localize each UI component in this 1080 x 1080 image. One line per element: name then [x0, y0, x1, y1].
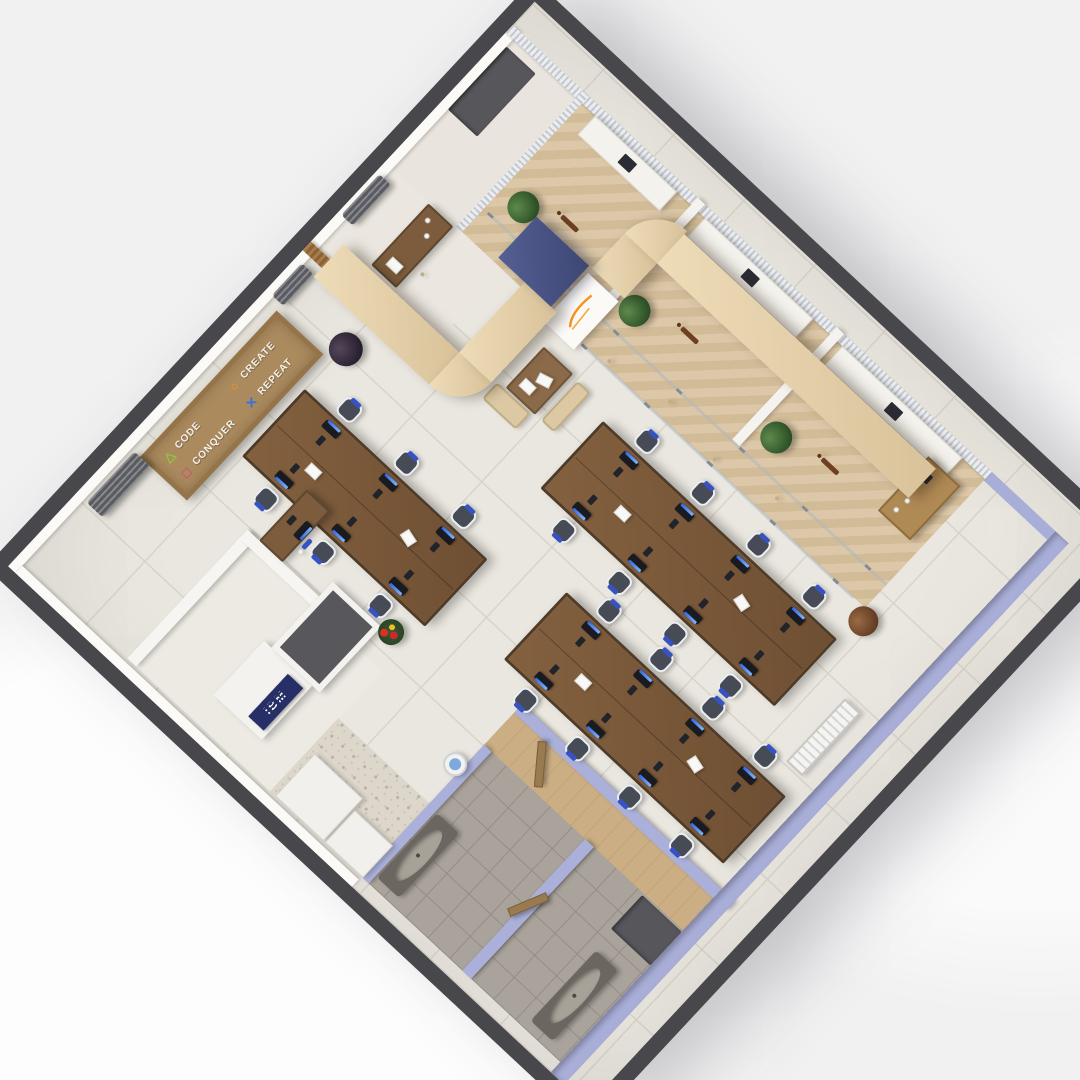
chair-headrest — [662, 635, 674, 647]
plant-dried — [842, 600, 884, 642]
plant-red — [373, 614, 410, 651]
keyboard — [286, 515, 297, 526]
x-icon: ✕ — [242, 393, 261, 412]
cup — [423, 216, 431, 224]
laptop — [740, 268, 760, 288]
plant-dark — [322, 325, 370, 373]
chair-headrest — [607, 583, 619, 595]
paper-sheet — [518, 378, 536, 396]
circle-icon: ○ — [224, 376, 243, 395]
laptop — [884, 402, 904, 422]
laptop — [617, 153, 637, 173]
chair-headrest — [703, 480, 715, 492]
chair-headrest — [647, 428, 659, 440]
square-icon: □ — [176, 463, 195, 482]
render-stage: IBM △CODE□CONQUER○CREATE✕REPEAT — [0, 0, 1080, 1080]
chair-headrest — [350, 397, 362, 409]
chair-headrest — [254, 500, 266, 512]
room: IBM △CODE□CONQUER○CREATE✕REPEAT — [0, 0, 1080, 1080]
chair-headrest — [814, 584, 826, 596]
kettle — [903, 497, 911, 505]
chair-headrest — [551, 532, 563, 544]
paper-sheet — [535, 372, 553, 389]
water-bottle — [447, 756, 464, 773]
chair-headrest — [311, 553, 323, 565]
paper-sheet — [385, 256, 403, 274]
coffee-machine — [892, 506, 900, 514]
east-corner-wall — [984, 472, 1056, 540]
chair-headrest — [407, 450, 419, 462]
triangle-icon: △ — [159, 446, 178, 465]
chair-headrest — [609, 598, 621, 610]
chair-headrest — [464, 504, 476, 516]
chair-headrest — [765, 743, 777, 755]
cup — [423, 232, 431, 240]
chair-headrest — [758, 532, 770, 544]
chair-white — [298, 549, 304, 555]
chair-headrest — [661, 646, 673, 658]
